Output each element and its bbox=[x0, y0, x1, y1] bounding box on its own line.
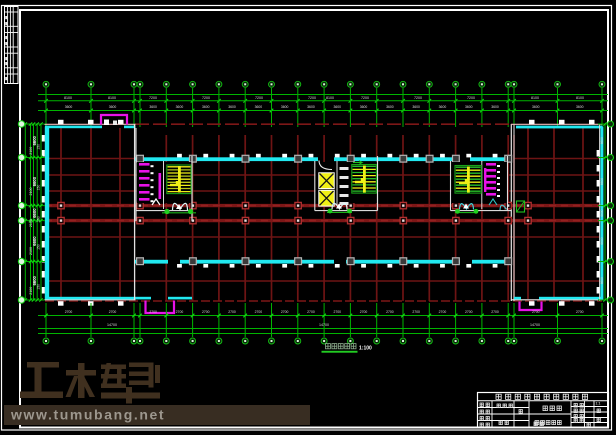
svg-text:6600: 6600 bbox=[600, 237, 604, 244]
svg-text:8100: 8100 bbox=[108, 96, 116, 100]
svg-text:2700: 2700 bbox=[202, 310, 210, 314]
svg-text:2700: 2700 bbox=[386, 310, 394, 314]
svg-text:6600: 6600 bbox=[600, 277, 604, 284]
svg-text:6600: 6600 bbox=[600, 137, 604, 144]
svg-text:3600: 3600 bbox=[333, 105, 341, 109]
svg-text:7200: 7200 bbox=[149, 96, 157, 100]
svg-text:2700: 2700 bbox=[360, 310, 368, 314]
svg-text:3600: 3600 bbox=[439, 105, 447, 109]
svg-text:2700: 2700 bbox=[412, 310, 420, 314]
svg-text:2100: 2100 bbox=[29, 188, 33, 196]
svg-text:7200: 7200 bbox=[467, 96, 475, 100]
svg-text:1:100: 1:100 bbox=[359, 346, 372, 352]
svg-text:2700: 2700 bbox=[307, 310, 315, 314]
svg-text:7200: 7200 bbox=[202, 96, 210, 100]
svg-text:8100: 8100 bbox=[576, 96, 584, 100]
svg-text:3600: 3600 bbox=[412, 105, 420, 109]
svg-text:3600: 3600 bbox=[65, 105, 73, 109]
svg-text:2700: 2700 bbox=[491, 310, 499, 314]
svg-text:14700: 14700 bbox=[530, 323, 540, 327]
svg-text:2700: 2700 bbox=[176, 310, 184, 314]
svg-text:2700: 2700 bbox=[65, 310, 73, 314]
svg-text:3600: 3600 bbox=[281, 105, 289, 109]
svg-text:3600: 3600 bbox=[176, 105, 184, 109]
svg-text:7200: 7200 bbox=[361, 96, 369, 100]
svg-text:7200: 7200 bbox=[308, 96, 316, 100]
svg-text:3600: 3600 bbox=[491, 105, 499, 109]
svg-text:150: 150 bbox=[37, 244, 41, 250]
svg-text:2100: 2100 bbox=[29, 219, 33, 227]
svg-text:2700: 2700 bbox=[576, 310, 584, 314]
svg-text:3600: 3600 bbox=[255, 105, 263, 109]
svg-text:www.tumubang.net: www.tumubang.net bbox=[10, 407, 165, 423]
svg-text:6600: 6600 bbox=[600, 209, 604, 216]
svg-text:3600: 3600 bbox=[465, 105, 473, 109]
svg-text:2100: 2100 bbox=[29, 287, 33, 295]
svg-text:3600: 3600 bbox=[576, 105, 584, 109]
svg-text:2700: 2700 bbox=[228, 310, 236, 314]
svg-text:8100: 8100 bbox=[326, 96, 334, 100]
svg-text:3600: 3600 bbox=[109, 105, 117, 109]
svg-text:2700: 2700 bbox=[281, 310, 289, 314]
svg-text:2700: 2700 bbox=[532, 310, 540, 314]
svg-text:7200: 7200 bbox=[255, 96, 263, 100]
svg-text:3600: 3600 bbox=[360, 105, 368, 109]
svg-text:3600: 3600 bbox=[149, 105, 157, 109]
svg-text:3600: 3600 bbox=[532, 105, 540, 109]
svg-text:14700: 14700 bbox=[107, 323, 117, 327]
svg-text:2700: 2700 bbox=[439, 310, 447, 314]
svg-text:6600: 6600 bbox=[600, 178, 604, 185]
svg-text:2100: 2100 bbox=[29, 147, 33, 155]
svg-text:2700: 2700 bbox=[255, 310, 263, 314]
svg-text:2700: 2700 bbox=[465, 310, 473, 314]
svg-text:8100: 8100 bbox=[531, 96, 539, 100]
svg-text:14700: 14700 bbox=[319, 323, 329, 327]
svg-text:2700: 2700 bbox=[333, 310, 341, 314]
svg-text:150: 150 bbox=[37, 284, 41, 290]
svg-text:2700: 2700 bbox=[109, 310, 117, 314]
svg-text:3600: 3600 bbox=[386, 105, 394, 109]
svg-text:2700: 2700 bbox=[149, 310, 157, 314]
svg-text:150: 150 bbox=[37, 185, 41, 191]
svg-text:3600: 3600 bbox=[202, 105, 210, 109]
svg-text:8100: 8100 bbox=[64, 96, 72, 100]
svg-text:2100: 2100 bbox=[29, 247, 33, 255]
svg-text:3600: 3600 bbox=[228, 105, 236, 109]
svg-text:3600: 3600 bbox=[307, 105, 315, 109]
svg-text:1:1: 1:1 bbox=[596, 402, 601, 406]
svg-text:150: 150 bbox=[37, 216, 41, 222]
svg-text:7200: 7200 bbox=[414, 96, 422, 100]
svg-text:150: 150 bbox=[37, 144, 41, 150]
